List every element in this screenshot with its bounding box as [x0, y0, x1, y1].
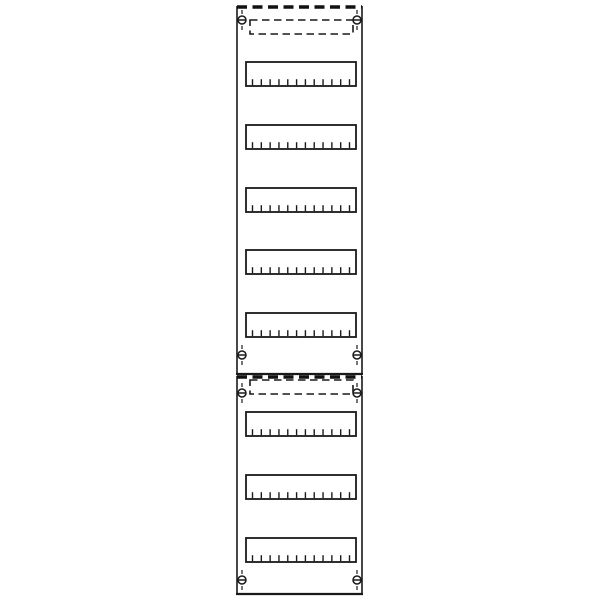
din-row-outline: [246, 412, 356, 436]
din-rail-row[interactable]: [246, 313, 356, 337]
din-row-outline: [246, 475, 356, 499]
din-row-outline: [246, 538, 356, 562]
screw-icon: [238, 10, 246, 30]
screw-icon: [353, 345, 361, 365]
cover-strip-dashed-outline: [250, 380, 353, 394]
din-row-outline: [246, 125, 356, 149]
din-rail-row[interactable]: [246, 412, 356, 436]
panel-field-2[interactable]: [236, 376, 363, 594]
drawing-area: [0, 0, 600, 600]
din-rail-row[interactable]: [246, 188, 356, 212]
din-row-outline: [246, 62, 356, 86]
screw-icon: [238, 570, 246, 590]
screw-icon: [353, 10, 361, 30]
din-rail-row[interactable]: [246, 538, 356, 562]
din-row-outline: [246, 250, 356, 274]
cover-strip-dashed-outline: [250, 20, 353, 34]
screw-icon: [353, 383, 361, 403]
board-diagram-canvas: [0, 0, 600, 600]
screw-icon: [353, 570, 361, 590]
panel-field-1[interactable]: [236, 6, 363, 374]
din-row-outline: [246, 313, 356, 337]
din-rail-row[interactable]: [246, 250, 356, 274]
din-row-outline: [246, 188, 356, 212]
screw-icon: [238, 383, 246, 403]
din-rail-row[interactable]: [246, 62, 356, 86]
screw-icon: [238, 345, 246, 365]
din-rail-row[interactable]: [246, 125, 356, 149]
din-rail-row[interactable]: [246, 475, 356, 499]
